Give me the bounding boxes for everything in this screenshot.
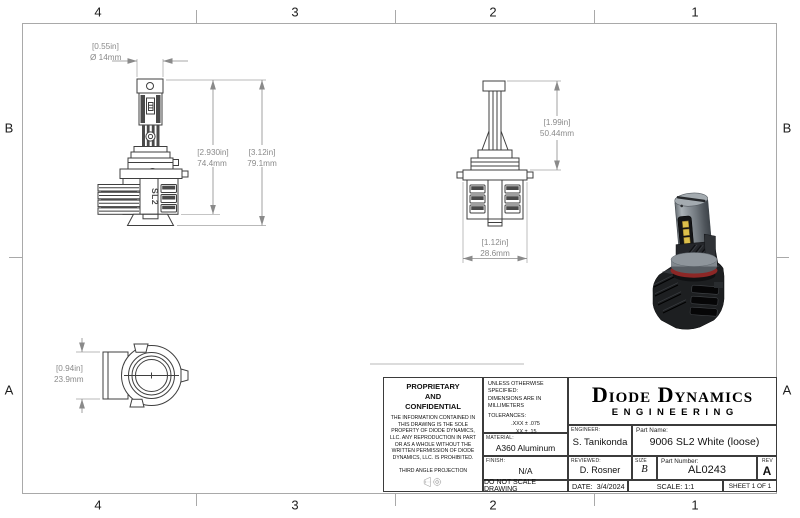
proprietary-body: THE INFORMATION CONTAINED IN THIS DRAWIN… [386,415,480,461]
part-number-value: AL0243 [658,464,756,476]
size-value: B [633,464,656,475]
part-number-label: Part Number: [661,458,698,465]
scale-cell: SCALE: 1:1 [628,480,723,492]
size-label: SIZE [635,458,647,464]
dim-h1-mm: 74.4mm [197,159,227,168]
third-angle-projection-icon [395,477,471,487]
do-not-scale-cell: DO NOT SCALE DRAWING [483,480,568,492]
part-name-value: 9006 SL2 White (loose) [633,436,776,448]
engineer-label: ENGINEER: [571,427,600,433]
bottom-view [103,344,188,407]
part-name-cell: Part Name: 9006 SL2 White (loose) [632,425,777,456]
part-number-cell: Part Number: AL0243 [657,456,757,480]
material-value: A360 Aluminum [484,443,567,453]
side-view [457,81,533,226]
reviewed-cell: REVIEWED: D. Rosner [568,456,632,480]
heatsink-logo-text: SL2 [150,188,160,205]
reviewed-label: REVIEWED: [571,458,601,464]
date-label: DATE: [572,482,593,491]
material-cell: MATERIAL: A360 Aluminum [483,433,568,456]
date-value: 3/4/2024 [597,482,625,491]
dim-bottom-in: [0.94in] [56,364,83,373]
dim-bottom-mm: 23.9mm [54,375,84,384]
render-3d [653,191,724,329]
proprietary-cell: PROPRIETARY AND CONFIDENTIAL THE INFORMA… [383,377,483,492]
led-chip [682,221,689,228]
dim-side-h-mm: 50.44mm [540,129,574,138]
led-chip [684,237,691,244]
finish-label: FINISH: [486,458,505,464]
company-subtitle: ENGINEERING [606,407,739,418]
bottom-view-dimensions: [0.94in] 23.9mm [54,338,100,413]
dim-side-w-in: [1.12in] [482,238,509,247]
tolerances-label: TOLERANCES: [488,413,563,420]
title-block: PROPRIETARY AND CONFIDENTIAL THE INFORMA… [383,377,777,492]
rev-label: REV [762,458,773,464]
dim-side-w-mm: 28.6mm [480,249,510,258]
company-name: Diode Dynamics [592,384,753,406]
company-logo-cell: Diode Dynamics ENGINEERING [568,377,777,425]
finish-cell: FINISH: N/A [483,456,568,480]
dim-h1-in: [2.930in] [197,148,228,157]
finish-value: N/A [484,466,567,476]
material-label: MATERIAL: [486,435,514,441]
heatsink-fins [98,185,140,215]
size-cell: SIZE B [632,456,657,480]
part-name-label: Part Name: [636,427,668,434]
unless-otherwise-label: UNLESS OTHERWISE SPECIFIED: [488,381,563,396]
do-not-scale-label: DO NOT SCALE DRAWING [484,479,567,493]
date-cell: DATE: 3/4/2024 [568,480,628,492]
dimensions-units-label: DIMENSIONS ARE IN MILLIMETERS [488,396,563,411]
engineer-cell: ENGINEER: S. Tanikonda [568,425,632,456]
tolerance-line: .XXX ± .075 [488,421,563,428]
engineer-value: S. Tanikonda [569,437,631,448]
dim-diameter-in: [0.55in] [92,42,119,51]
dim-h2-in: [3.12in] [249,148,276,157]
sheet-value: SHEET 1 OF 1 [729,483,772,490]
rev-cell: REV A [757,456,777,480]
tolerances-cell: UNLESS OTHERWISE SPECIFIED: DIMENSIONS A… [483,377,568,433]
sheet-cell: SHEET 1 OF 1 [723,480,777,492]
scale-value: SCALE: 1:1 [657,482,695,491]
dim-h2-mm: 79.1mm [247,159,277,168]
front-view: SL2 [98,79,188,226]
proprietary-title: PROPRIETARY AND CONFIDENTIAL [405,382,461,411]
dim-diameter-mm: Ø 14mm [90,53,122,62]
projection-label: THIRD ANGLE PROJECTION [399,468,467,474]
dim-side-h-in: [1.99in] [544,118,571,127]
drawing-sheet: 4 3 2 1 4 3 2 1 B A B A [0,0,800,518]
led-chip [683,229,690,236]
reviewed-value: D. Rosner [569,465,631,475]
rev-value: A [758,464,776,478]
